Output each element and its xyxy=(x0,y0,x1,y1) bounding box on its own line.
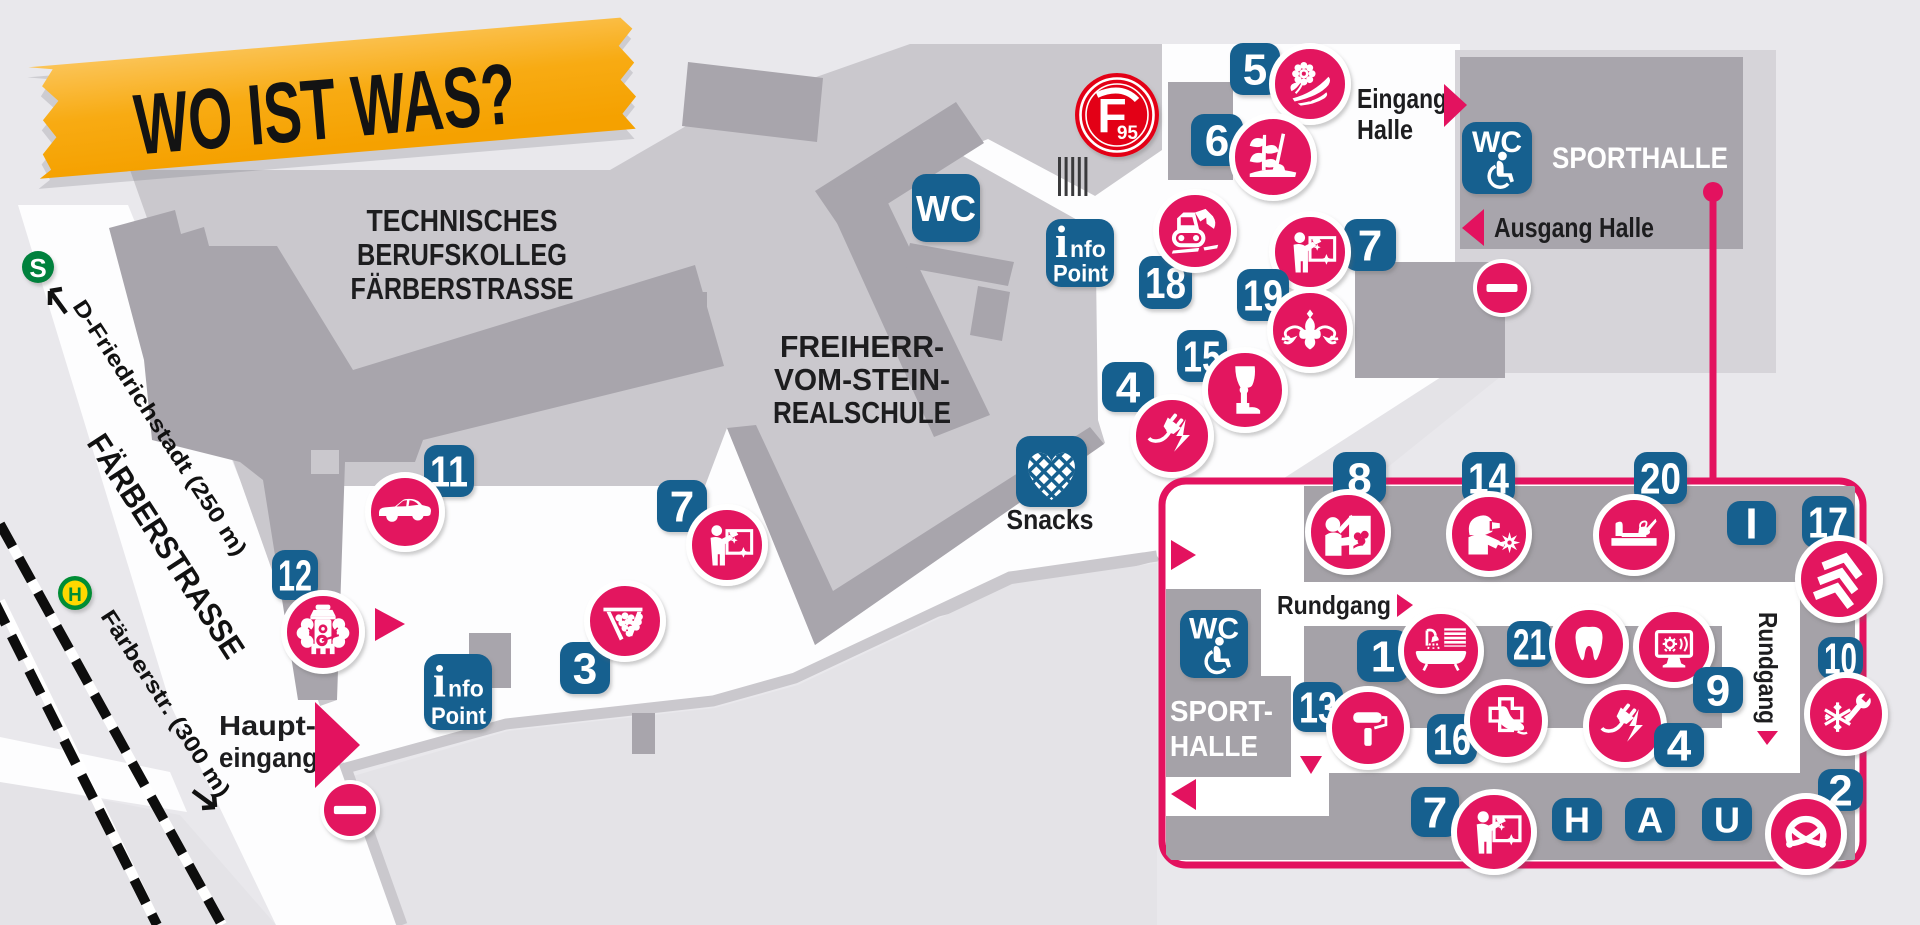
svg-text:Rundgang: Rundgang xyxy=(1277,590,1391,620)
svg-text:Ausgang Halle: Ausgang Halle xyxy=(1494,212,1654,243)
svg-text:4: 4 xyxy=(1667,722,1692,771)
svg-text:Eingang: Eingang xyxy=(1357,83,1447,114)
svg-text:WC: WC xyxy=(1472,126,1522,159)
svg-text:I: I xyxy=(1745,500,1757,549)
svg-text:SPORT-: SPORT- xyxy=(1170,696,1273,728)
svg-text:Haupt-: Haupt- xyxy=(219,710,316,741)
svg-text:A: A xyxy=(1637,799,1663,840)
svg-text:VOM-STEIN-: VOM-STEIN- xyxy=(774,362,950,397)
svg-text:5: 5 xyxy=(1243,46,1267,95)
svg-text:7: 7 xyxy=(1358,222,1382,271)
svg-text:SPORTHALLE: SPORTHALLE xyxy=(1552,142,1728,175)
svg-text:FREIHERR-: FREIHERR- xyxy=(780,329,944,364)
svg-text:H: H xyxy=(1564,799,1590,840)
svg-text:Point: Point xyxy=(431,703,486,730)
svg-text:4: 4 xyxy=(1116,364,1141,413)
svg-text:HALLE: HALLE xyxy=(1170,731,1258,763)
svg-text:WC: WC xyxy=(1189,613,1239,646)
svg-text:REALSCHULE: REALSCHULE xyxy=(773,395,951,430)
svg-text:6: 6 xyxy=(1205,117,1229,166)
svg-text:Snacks: Snacks xyxy=(1007,504,1094,535)
svg-text:i: i xyxy=(1055,216,1068,267)
svg-text:Rundgang: Rundgang xyxy=(1753,612,1783,724)
svg-text:1: 1 xyxy=(1371,633,1395,682)
svg-text:FÄRBERSTRASSE: FÄRBERSTRASSE xyxy=(351,271,574,306)
svg-text:S: S xyxy=(29,253,46,283)
svg-text:eingang: eingang xyxy=(219,742,318,773)
svg-text:WC: WC xyxy=(916,188,976,229)
svg-text:95: 95 xyxy=(1117,123,1139,144)
svg-text:H: H xyxy=(68,585,82,606)
svg-text:U: U xyxy=(1714,799,1740,840)
svg-text:Halle: Halle xyxy=(1357,114,1413,145)
svg-text:nfo: nfo xyxy=(448,676,484,702)
svg-text:3: 3 xyxy=(573,645,597,694)
svg-text:9: 9 xyxy=(1706,667,1730,716)
svg-text:BERUFSKOLLEG: BERUFSKOLLEG xyxy=(357,237,567,272)
svg-text:nfo: nfo xyxy=(1070,236,1106,262)
svg-text:21: 21 xyxy=(1513,621,1546,670)
svg-text:TECHNISCHES: TECHNISCHES xyxy=(367,203,558,238)
svg-text:Point: Point xyxy=(1053,261,1108,288)
svg-text:i: i xyxy=(433,656,446,707)
svg-text:7: 7 xyxy=(670,483,694,532)
svg-text:7: 7 xyxy=(1423,789,1447,838)
